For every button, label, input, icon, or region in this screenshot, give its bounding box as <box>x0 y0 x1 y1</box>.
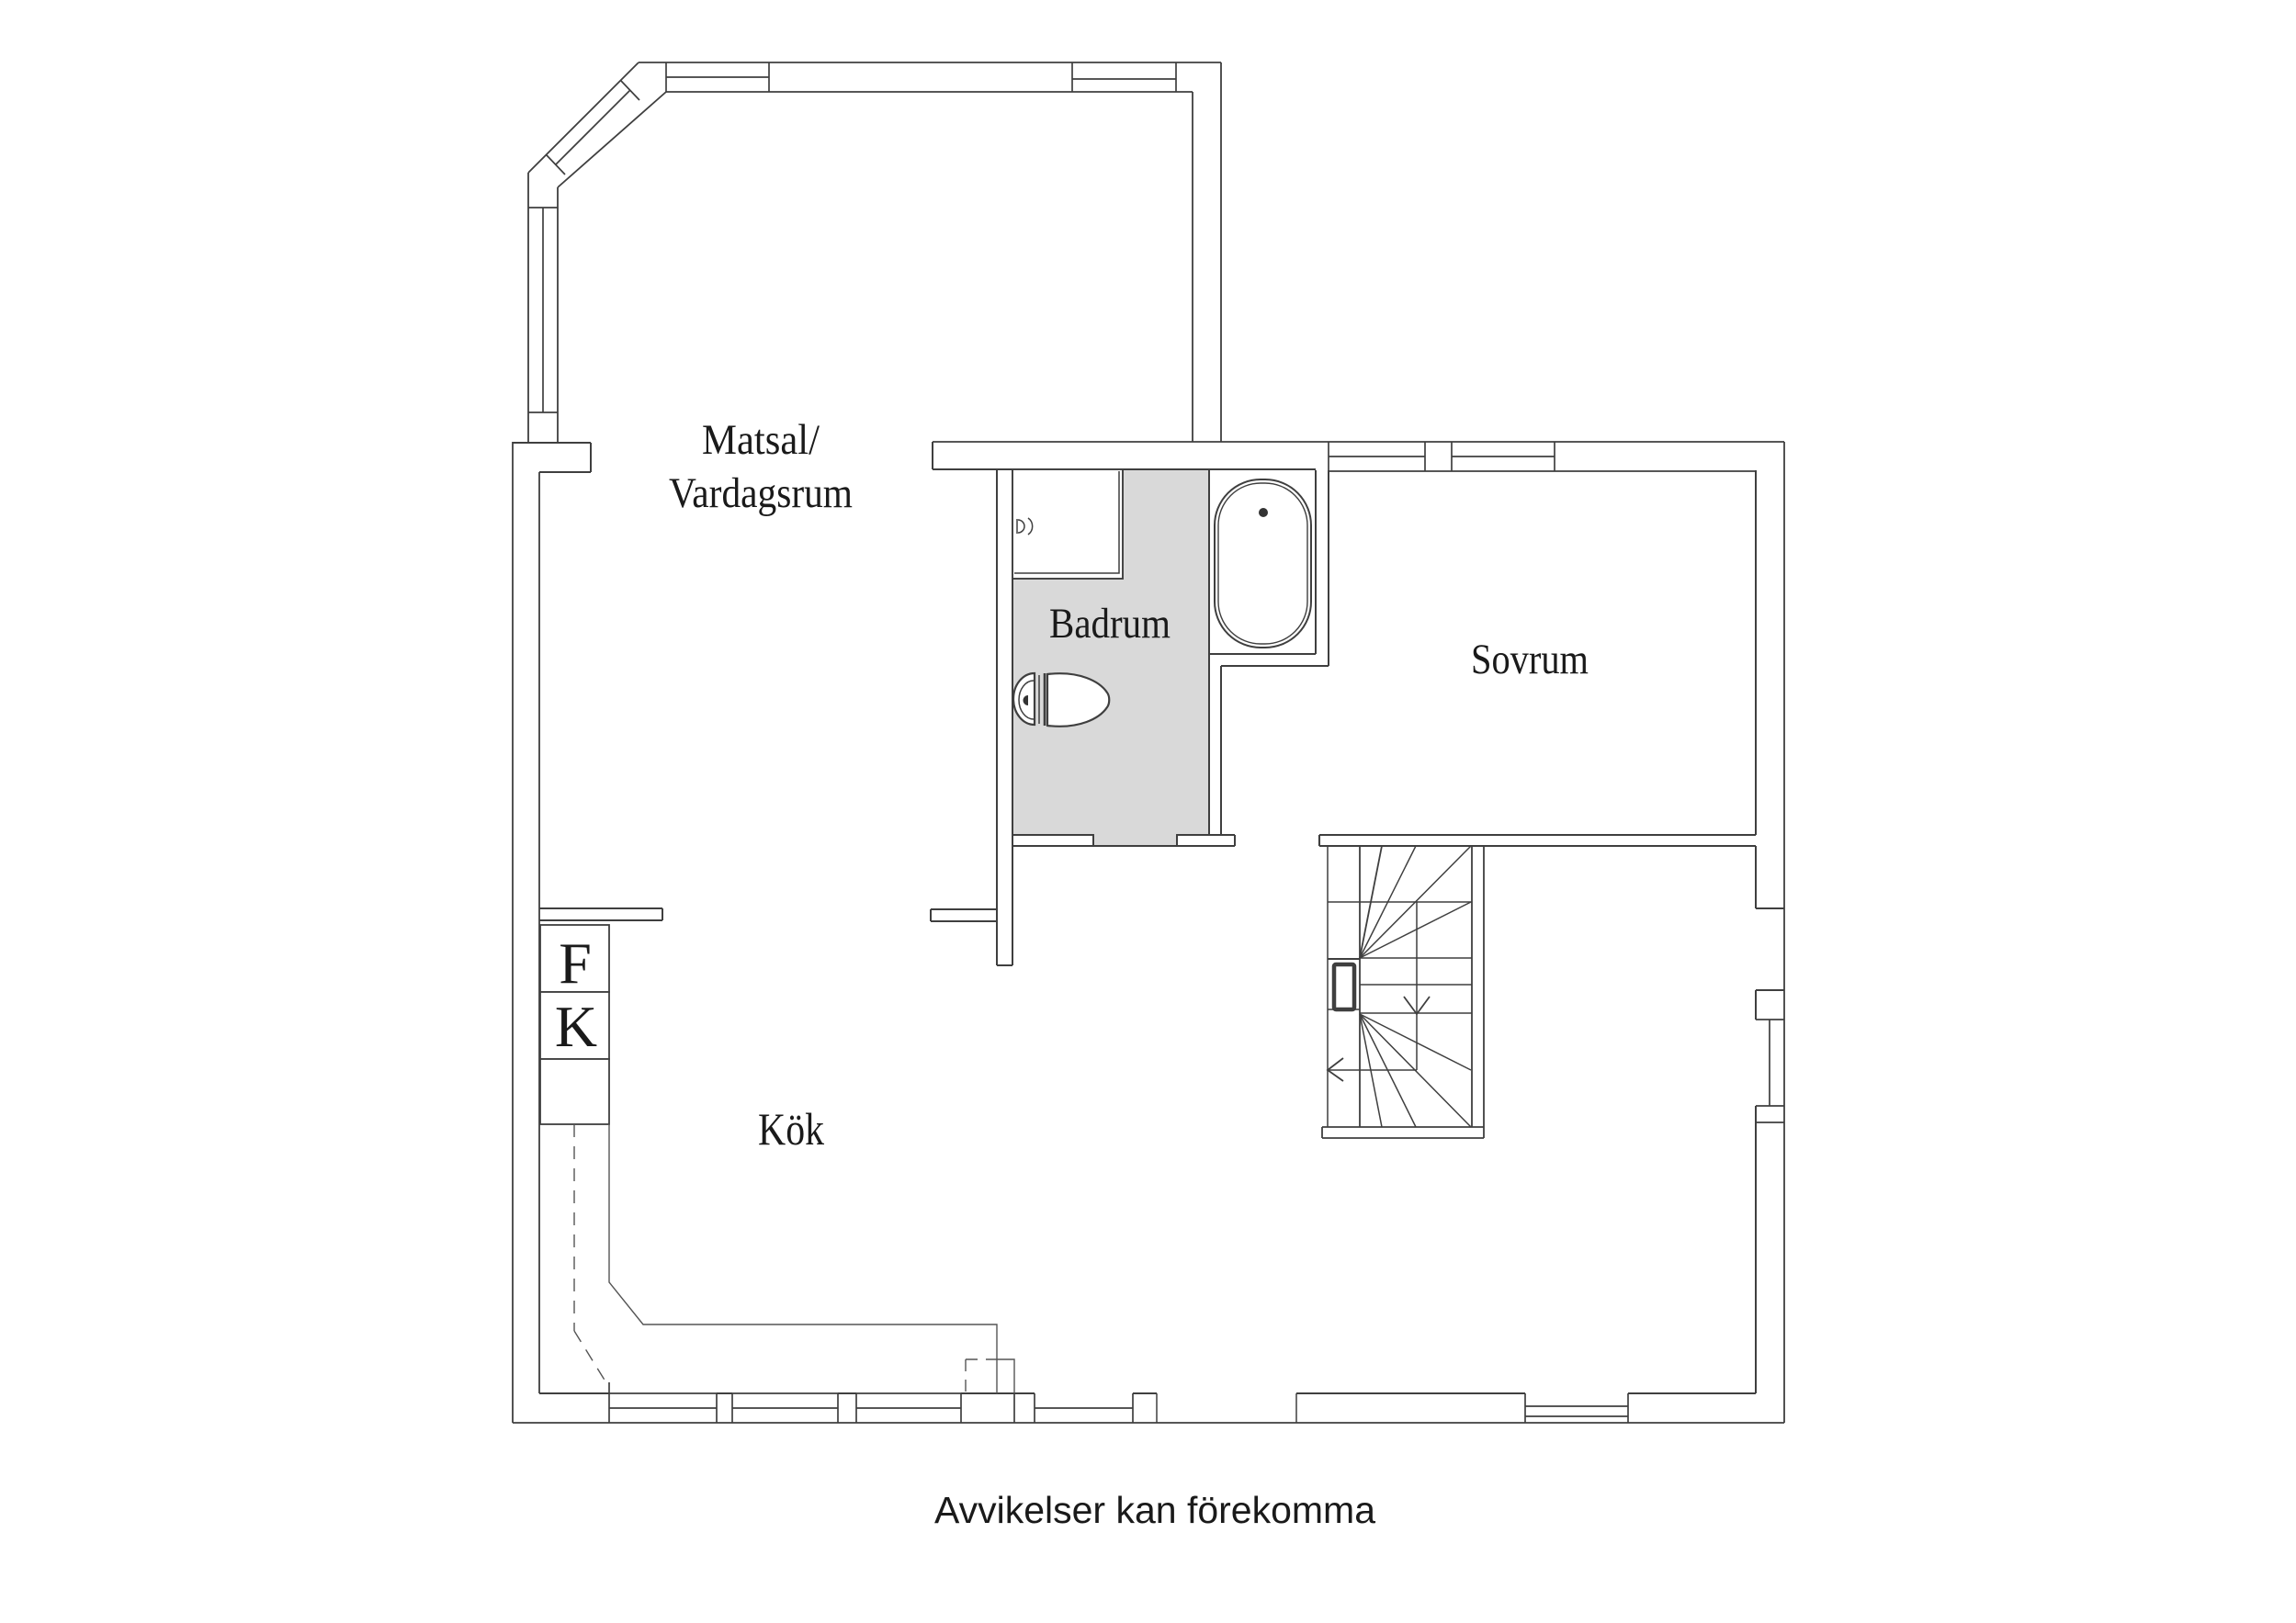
svg-text:Kök: Kök <box>758 1103 824 1155</box>
svg-text:Badrum: Badrum <box>1049 600 1171 648</box>
svg-text:K: K <box>555 994 597 1059</box>
svg-text:Avvikelser kan förekomma: Avvikelser kan förekomma <box>934 1489 1375 1531</box>
svg-text:Matsal/: Matsal/ <box>702 416 820 464</box>
svg-text:Vardagsrum: Vardagsrum <box>669 469 853 517</box>
svg-text:F: F <box>559 930 592 996</box>
svg-text:Sovrum: Sovrum <box>1471 636 1589 683</box>
